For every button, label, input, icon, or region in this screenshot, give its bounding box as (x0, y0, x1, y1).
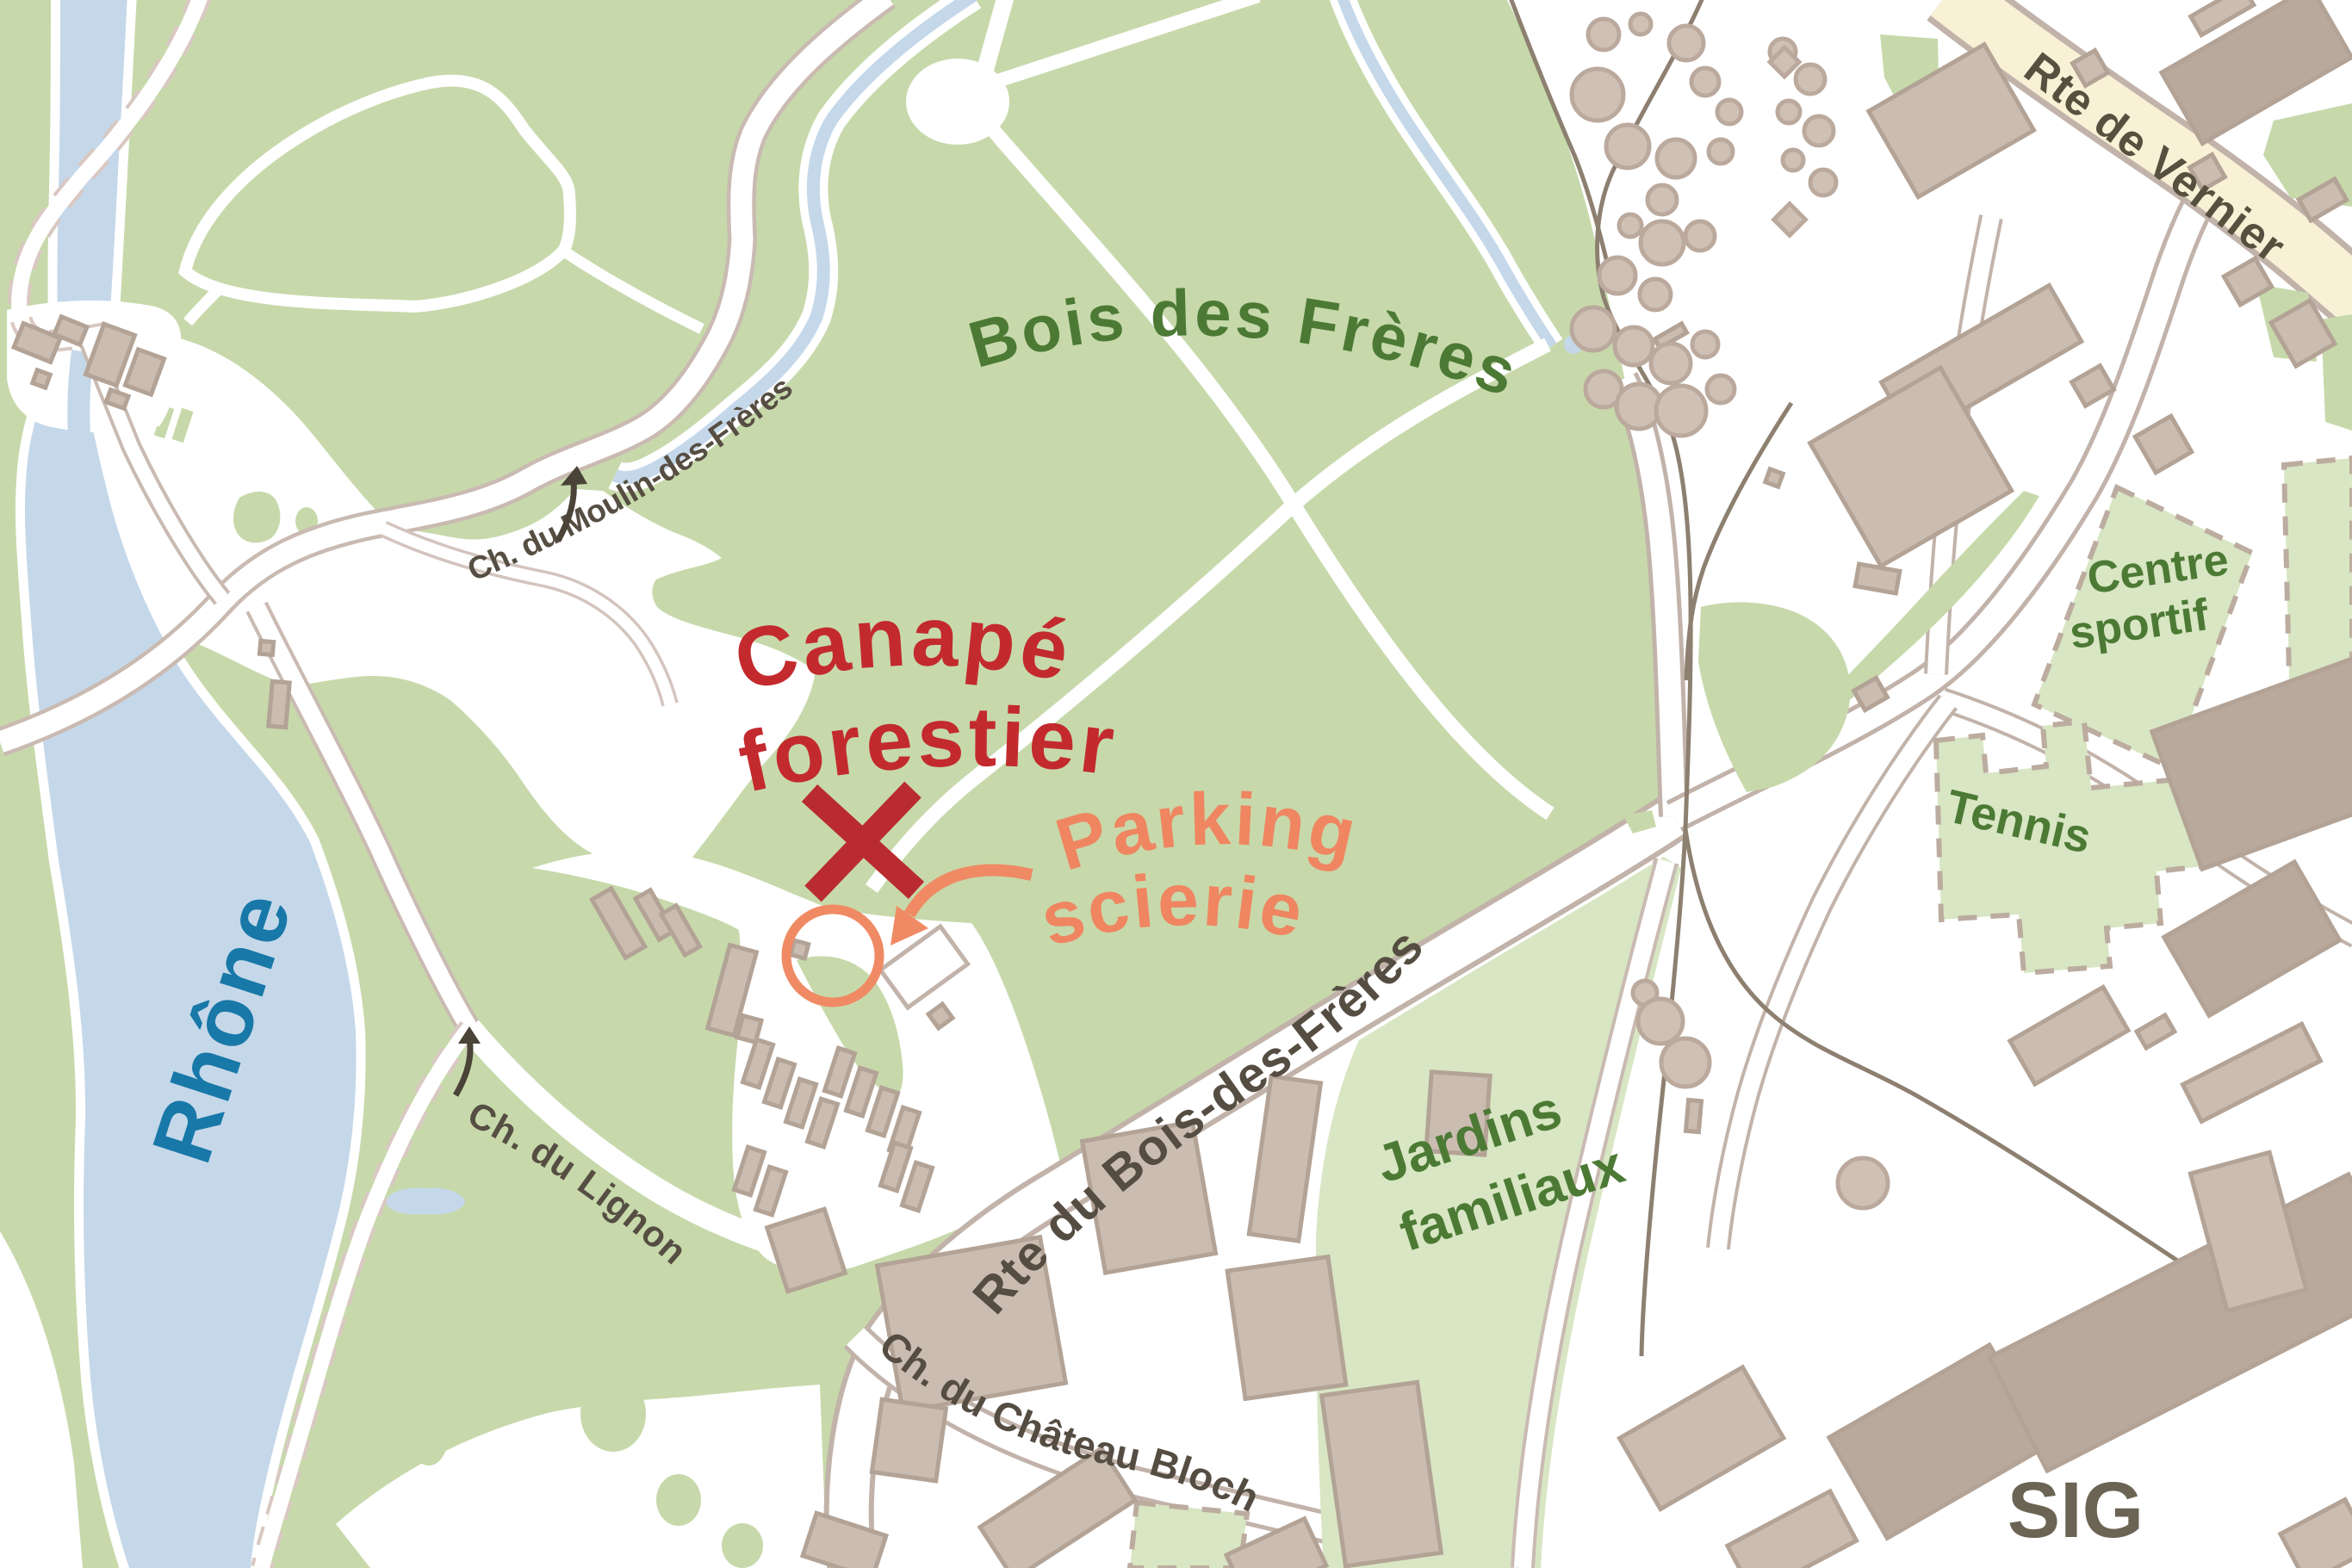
svg-text:SIG: SIG (2008, 1466, 2144, 1554)
